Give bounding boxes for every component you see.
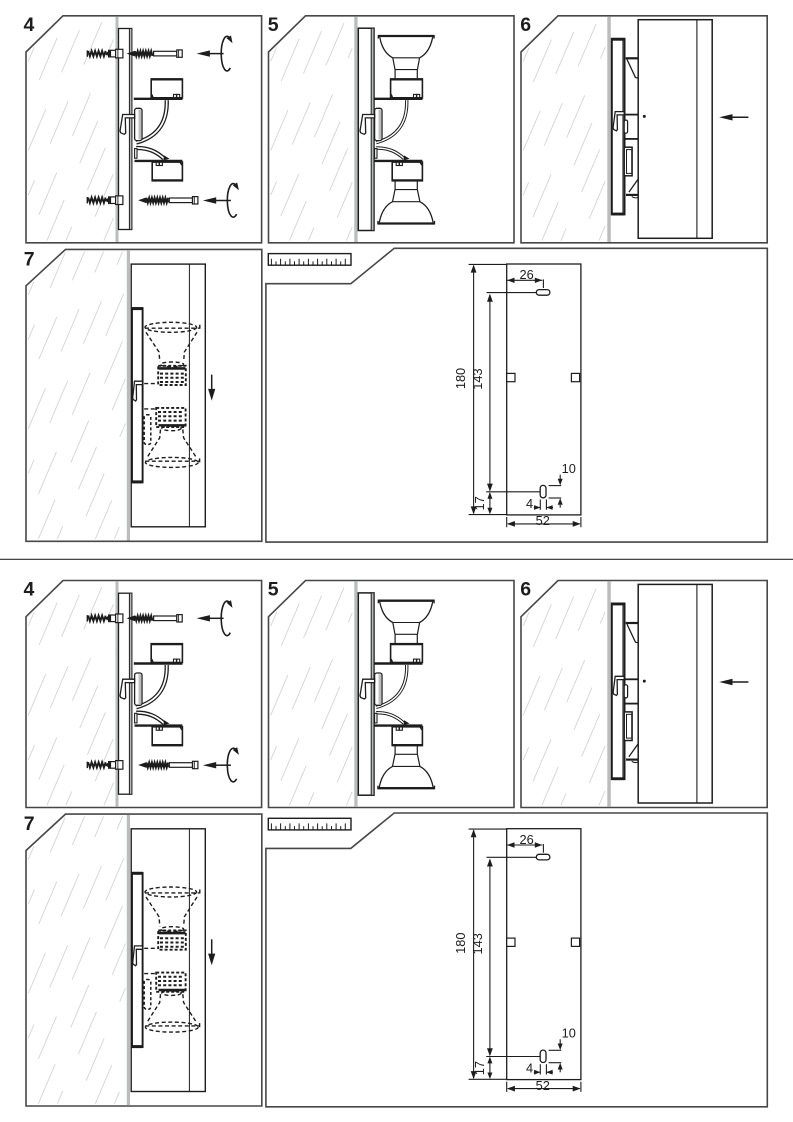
svg-text:26: 26 [519,267,533,282]
svg-text:4: 4 [526,496,533,511]
svg-text:4: 4 [24,14,35,36]
svg-text:143: 143 [470,368,485,389]
svg-text:180: 180 [453,933,468,954]
svg-text:6: 6 [520,14,531,36]
svg-text:143: 143 [470,933,485,954]
svg-text:4: 4 [24,579,35,601]
svg-text:10: 10 [562,461,576,476]
svg-text:17: 17 [472,496,487,510]
svg-text:7: 7 [24,249,35,271]
svg-text:6: 6 [520,579,531,601]
svg-text:10: 10 [562,1026,576,1041]
svg-text:52: 52 [536,1078,550,1093]
svg-text:26: 26 [519,832,533,847]
svg-text:52: 52 [536,513,550,528]
svg-text:7: 7 [24,813,35,835]
svg-text:17: 17 [472,1061,487,1075]
svg-text:4: 4 [526,1061,533,1076]
svg-text:180: 180 [453,368,468,389]
svg-text:5: 5 [268,579,279,601]
svg-text:5: 5 [268,14,279,36]
